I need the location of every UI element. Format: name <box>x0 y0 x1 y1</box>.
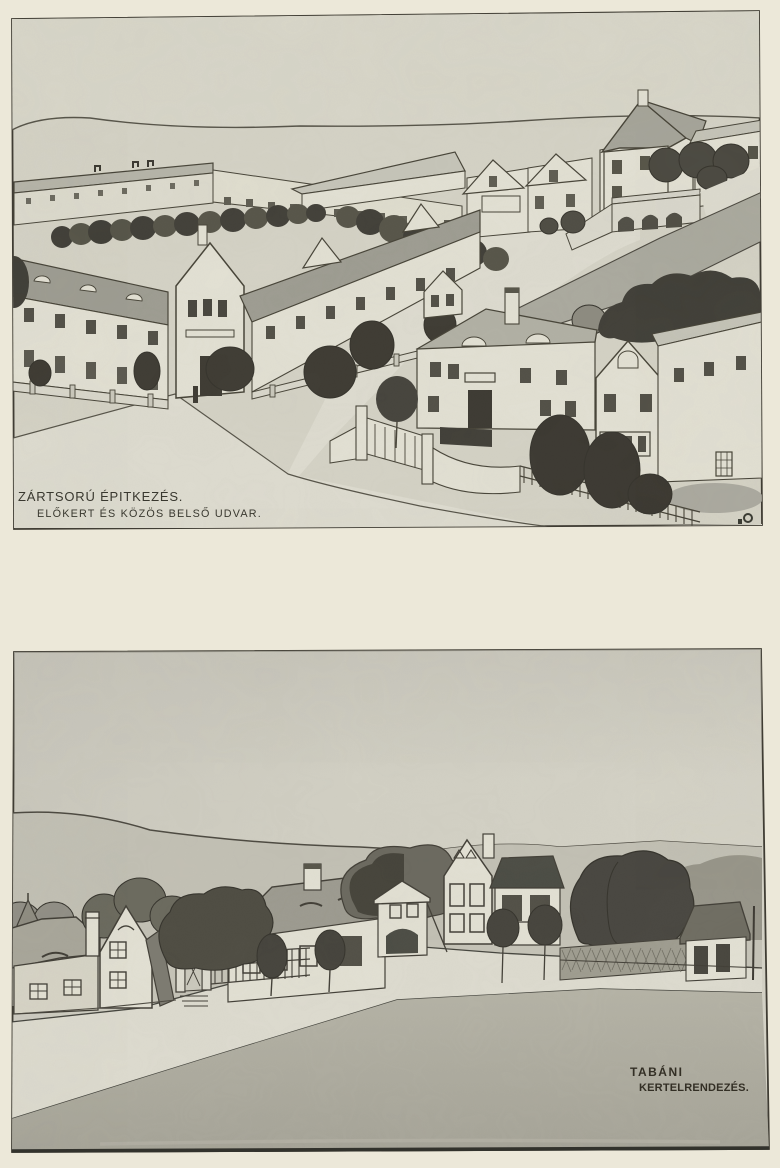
svg-text:ZÁRTSORÚ ÉPITKEZÉS.: ZÁRTSORÚ ÉPITKEZÉS. <box>18 489 183 504</box>
svg-text:TABÁNI: TABÁNI <box>630 1064 683 1079</box>
svg-text:ELŐKERT ÉS KÖZÖS BELSŐ UDVAR.: ELŐKERT ÉS KÖZÖS BELSŐ UDVAR. <box>37 506 262 520</box>
svg-text:KERTELRENDEZÉS.: KERTELRENDEZÉS. <box>639 1081 749 1094</box>
